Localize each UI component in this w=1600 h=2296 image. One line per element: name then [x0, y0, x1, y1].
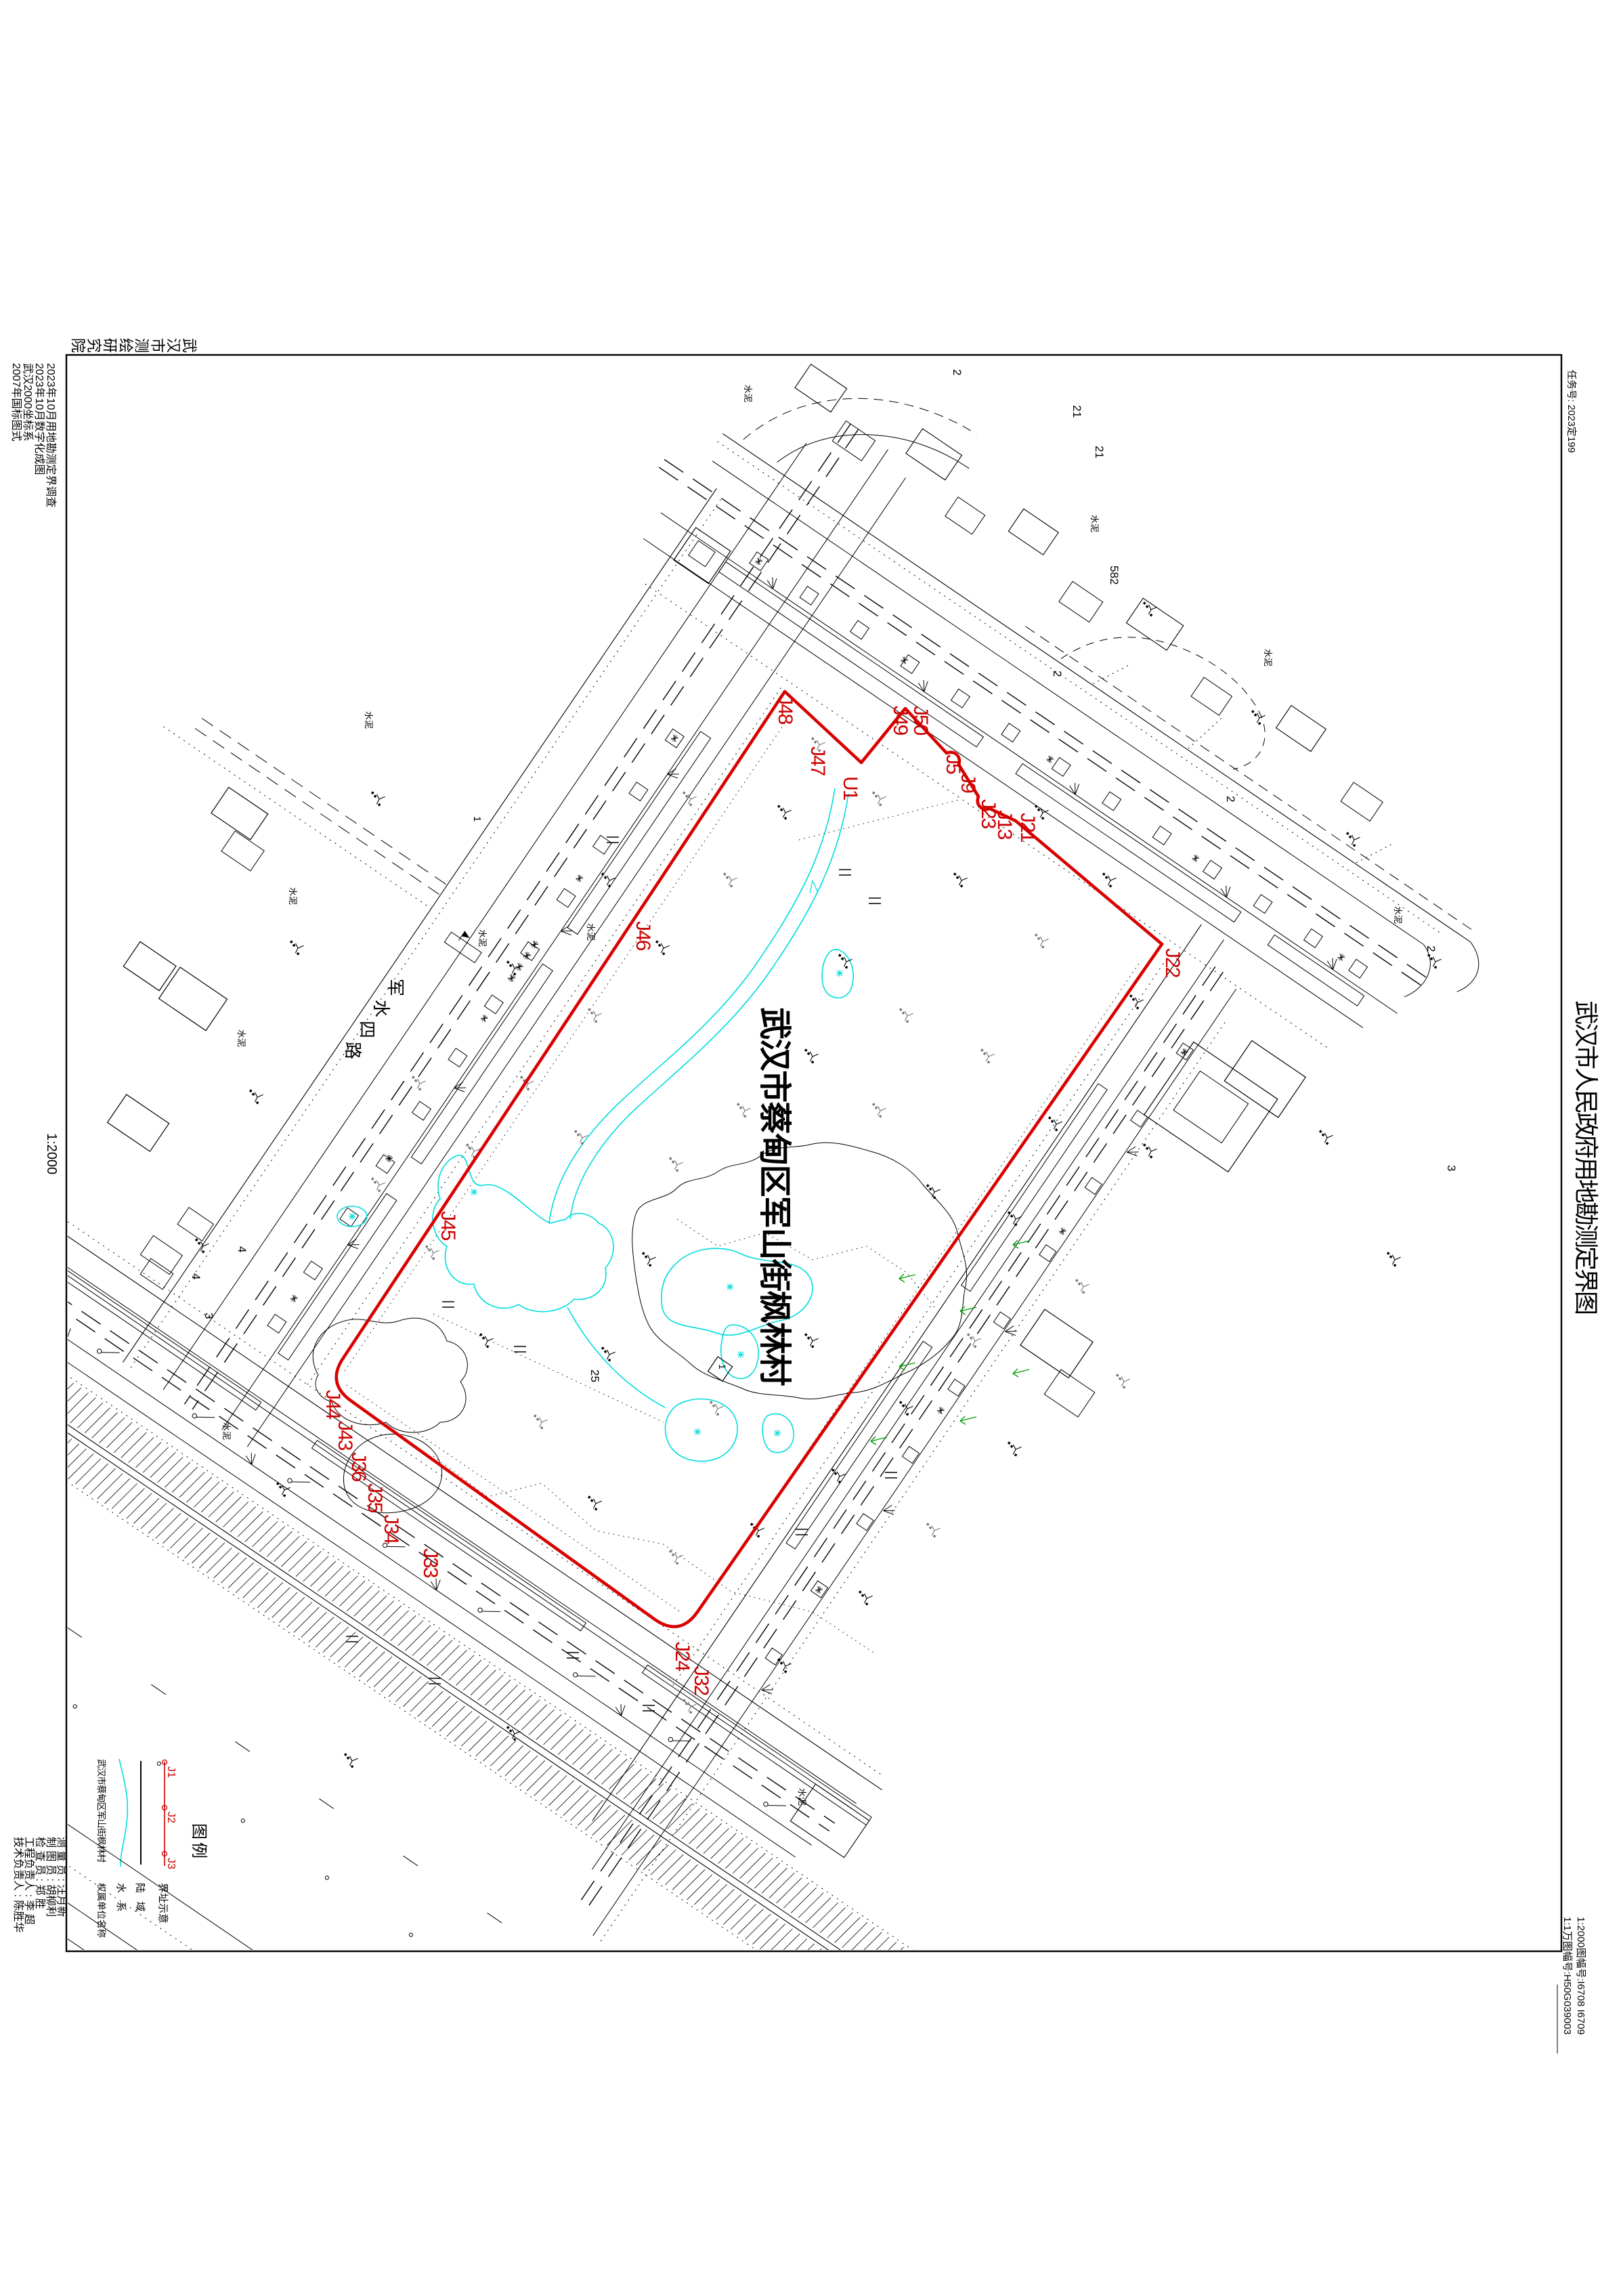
svg-text:25: 25 — [588, 1369, 601, 1382]
svg-text:J3: J3 — [165, 1858, 177, 1869]
svg-text:U1: U1 — [839, 776, 861, 801]
svg-text:陆 域: 陆 域 — [134, 1883, 146, 1912]
svg-text:J21: J21 — [1016, 813, 1039, 843]
svg-text:J47: J47 — [806, 746, 829, 776]
svg-text:J34: J34 — [380, 1514, 402, 1544]
svg-text:J2: J2 — [165, 1812, 177, 1823]
svg-text:3: 3 — [202, 1313, 215, 1319]
svg-text:J43: J43 — [334, 1421, 356, 1451]
svg-text:武汉市人民政府用地勘测定界图: 武汉市人民政府用地勘测定界图 — [1572, 1000, 1600, 1313]
svg-text:J22: J22 — [1161, 948, 1184, 978]
svg-text:J44: J44 — [322, 1390, 344, 1420]
svg-text:四: 四 — [357, 1021, 377, 1038]
svg-text:1: 1 — [471, 816, 483, 822]
svg-text:市: 市 — [149, 338, 166, 353]
svg-text:测 量 员 : 汪月新: 测 量 员 : 汪月新 — [56, 1837, 68, 1917]
svg-text:1:2000: 1:2000 — [44, 1133, 59, 1174]
svg-text:水泥: 水泥 — [797, 1788, 807, 1806]
svg-text:1:2000图幅号:I6708 I6709: 1:2000图幅号:I6708 I6709 — [1575, 1917, 1586, 2035]
svg-text:汉: 汉 — [165, 338, 182, 353]
svg-text:4: 4 — [190, 1273, 202, 1279]
svg-text:582: 582 — [1108, 566, 1121, 584]
svg-text:图例: 图例 — [190, 1823, 208, 1861]
svg-text:究: 究 — [85, 338, 102, 353]
svg-text:水泥: 水泥 — [1089, 515, 1100, 532]
svg-text:检 查 员 : 郑 胜: 检 查 员 : 郑 胜 — [34, 1837, 46, 1909]
svg-text:2: 2 — [1224, 796, 1237, 802]
svg-text:水: 水 — [371, 1000, 391, 1017]
svg-text:2: 2 — [1051, 671, 1064, 677]
svg-text:J35: J35 — [364, 1483, 386, 1513]
svg-text:水泥: 水泥 — [586, 923, 596, 941]
svg-text:路: 路 — [343, 1042, 363, 1059]
svg-text:水泥: 水泥 — [364, 711, 374, 729]
svg-text:制 图 员 : 胡柳利: 制 图 员 : 胡柳利 — [45, 1837, 57, 1917]
svg-text:4: 4 — [236, 1246, 248, 1252]
svg-text:J48: J48 — [774, 695, 796, 725]
svg-text:J46: J46 — [632, 921, 654, 951]
svg-text:2: 2 — [1425, 945, 1437, 952]
svg-text:水泥: 水泥 — [236, 1029, 246, 1047]
svg-text:2023年10月用地勘测定界调查: 2023年10月用地勘测定界调查 — [45, 363, 57, 507]
svg-text:技术负责人 : 陈胜华: 技术负责人 : 陈胜华 — [12, 1837, 24, 1932]
svg-text:J9: J9 — [957, 773, 979, 793]
svg-text:J49: J49 — [889, 706, 911, 736]
svg-text:2007年国标图式: 2007年国标图式 — [10, 363, 22, 442]
svg-text:J32: J32 — [690, 1666, 712, 1696]
svg-text:J33: J33 — [419, 1548, 441, 1578]
svg-text:3: 3 — [1445, 1165, 1458, 1171]
svg-text:J45: J45 — [437, 1211, 459, 1241]
svg-text:J13: J13 — [993, 810, 1016, 840]
svg-text:21: 21 — [1093, 446, 1106, 459]
svg-text:武: 武 — [181, 338, 198, 353]
svg-text:军: 军 — [385, 979, 406, 996]
svg-text:武汉2000坐标系: 武汉2000坐标系 — [22, 363, 34, 442]
svg-text:J50: J50 — [909, 706, 932, 736]
svg-text:任务号: 2023定199: 任务号: 2023定199 — [1565, 370, 1577, 453]
svg-text:1:1万图幅号:H50G039003: 1:1万图幅号:H50G039003 — [1561, 1917, 1573, 2035]
svg-text:水泥: 水泥 — [221, 1422, 232, 1440]
svg-text:研: 研 — [102, 338, 118, 353]
svg-text:绘: 绘 — [117, 338, 134, 353]
svg-text:J5: J5 — [942, 754, 964, 774]
svg-text:武汉市蔡甸区军山街枫林村: 武汉市蔡甸区军山街枫林村 — [756, 1007, 792, 1386]
svg-text:2023年10月数字化成图: 2023年10月数字化成图 — [33, 363, 45, 475]
svg-text:测: 测 — [133, 338, 150, 353]
svg-text:J1: J1 — [165, 1766, 177, 1778]
svg-text:水泥: 水泥 — [477, 929, 488, 947]
svg-text:水 系: 水 系 — [115, 1883, 127, 1912]
svg-text:2: 2 — [951, 369, 964, 375]
svg-text:21: 21 — [1071, 405, 1083, 418]
svg-text:1: 1 — [717, 1364, 728, 1369]
svg-text:水泥: 水泥 — [743, 385, 753, 402]
svg-text:工程负责人 : 李 超: 工程负责人 : 李 超 — [23, 1837, 35, 1925]
svg-text:J36: J36 — [347, 1452, 370, 1482]
svg-text:水泥: 水泥 — [1263, 649, 1273, 666]
svg-text:水泥: 水泥 — [288, 887, 298, 905]
svg-text:院: 院 — [70, 338, 87, 353]
svg-text:水泥: 水泥 — [1393, 906, 1403, 924]
